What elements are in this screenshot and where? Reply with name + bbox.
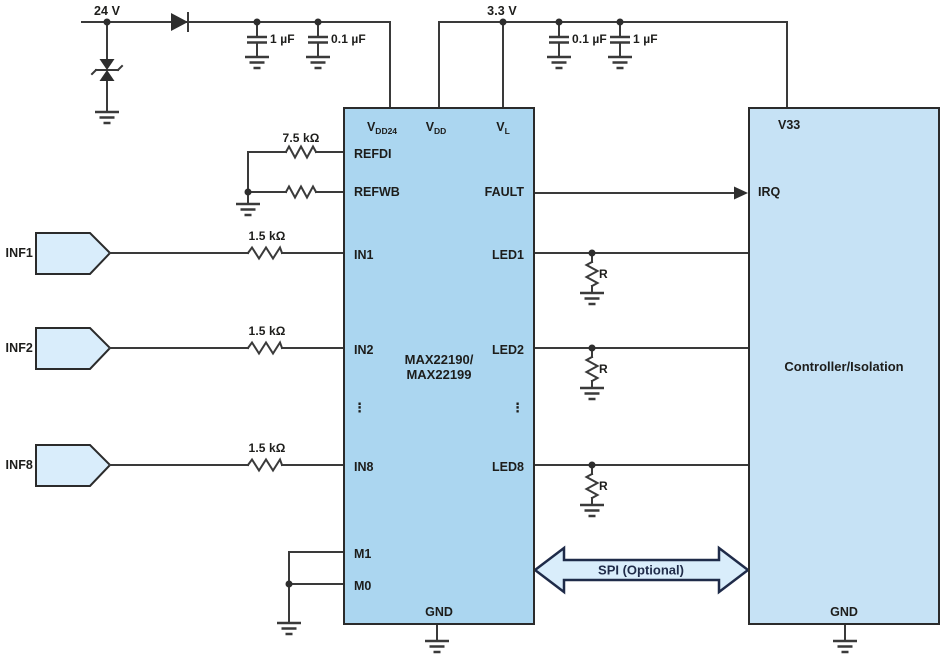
label-cap-01uf-24v: 0.1 µF (331, 31, 366, 47)
label-refdi-resistor: 7.5 kΩ (283, 130, 320, 146)
resistor-led2-icon (587, 357, 598, 381)
label-led2-resistor: R (599, 361, 608, 377)
resistor-led8-icon (587, 474, 598, 498)
pin-in8: IN8 (354, 459, 373, 475)
ground-icon-cap1-24v (245, 57, 269, 68)
resistor-refdi-icon (286, 147, 316, 158)
schematic-canvas: 24 V 1 µF 0.1 µF 3.3 V 0.1 µF 1 µF 7.5 k… (0, 0, 948, 658)
ground-icon-tvs (95, 112, 119, 123)
ic-left-ellipsis: ⋮ (353, 400, 366, 416)
ground-icon-led8 (580, 505, 604, 516)
junction-dot (617, 19, 624, 26)
pin-fault: FAULT (485, 184, 524, 200)
wire-m1-m0 (289, 552, 343, 623)
tvs-diode-lower-icon (100, 70, 115, 81)
input-connector-inf1 (36, 233, 110, 274)
resistor-led1-icon (587, 262, 598, 286)
wire-led2 (535, 348, 748, 388)
pin-vdd: VDD (426, 119, 447, 139)
ground-icon-cap2-24v (306, 57, 330, 68)
label-inf1: INF1 (0, 245, 33, 261)
junction-dot (315, 19, 322, 26)
ground-icon-cap2-3v3 (608, 57, 632, 68)
input-connector-inf8 (36, 445, 110, 486)
wire-led1 (535, 253, 748, 293)
controller-block: V33 IRQ Controller/Isolation GND (748, 107, 940, 625)
label-in1-resistor: 1.5 kΩ (249, 228, 286, 244)
ground-icon-cap1-3v3 (547, 57, 571, 68)
label-cap-1uf-3v3: 1 µF (633, 31, 658, 47)
resistor-in2-icon (248, 343, 282, 354)
label-inf2: INF2 (0, 340, 33, 356)
capacitor-1uf-24v-icon (247, 37, 267, 43)
pin-led1: LED1 (492, 247, 524, 263)
diode-icon (171, 13, 188, 31)
resistor-in1-icon (248, 248, 282, 259)
pin-v33: V33 (778, 117, 800, 133)
label-in2-resistor: 1.5 kΩ (249, 323, 286, 339)
label-24v-supply: 24 V (94, 3, 120, 19)
ground-icon-controller (833, 641, 857, 652)
pin-m0: M0 (354, 578, 371, 594)
ic-part-name: MAX22190/ MAX22199 (345, 352, 533, 382)
junction-dot (556, 19, 563, 26)
pin-vl: VL (496, 119, 510, 139)
junction-dot (589, 462, 596, 469)
resistor-in8-icon (248, 460, 282, 471)
ground-icon-ref (236, 204, 260, 215)
ground-icon-led2 (580, 388, 604, 399)
wire-3v3-rail (439, 22, 787, 107)
label-led1-resistor: R (599, 266, 608, 282)
junction-dot (589, 250, 596, 257)
ground-icon-led1 (580, 293, 604, 304)
pin-irq: IRQ (758, 184, 780, 200)
ic-right-ellipsis: ⋮ (511, 400, 524, 416)
junction-dot (500, 19, 507, 26)
pin-vdd24: VDD24 (367, 119, 397, 139)
label-cap-1uf-24v: 1 µF (270, 31, 295, 47)
label-led8-resistor: R (599, 478, 608, 494)
tvs-diode-upper-icon (100, 59, 115, 70)
capacitor-1uf-3v3-icon (610, 37, 630, 43)
ic-block-max22190: VDD24 VDD VL REFDI REFWB IN1 IN2 ⋮ IN8 M… (343, 107, 535, 625)
ground-icon-m0 (277, 623, 301, 634)
input-connector-inf2 (36, 328, 110, 369)
junction-dot (104, 19, 111, 26)
pin-ic-gnd: GND (345, 605, 533, 619)
pin-controller-gnd: GND (750, 605, 938, 619)
pin-refwb: REFWB (354, 184, 400, 200)
spi-label: SPI (Optional) (598, 563, 684, 578)
capacitor-01uf-3v3-icon (549, 37, 569, 43)
junction-dot (254, 19, 261, 26)
pin-m1: M1 (354, 546, 371, 562)
wire-led8 (535, 465, 748, 505)
ground-icon-ic (425, 641, 449, 652)
junction-dot (286, 581, 293, 588)
label-inf8: INF8 (0, 457, 33, 473)
fault-arrowhead-icon (734, 187, 748, 200)
pin-refdi: REFDI (354, 146, 392, 162)
pin-in1: IN1 (354, 247, 373, 263)
label-cap-01uf-3v3: 0.1 µF (572, 31, 607, 47)
resistor-refwb-icon (286, 187, 316, 198)
pin-led8: LED8 (492, 459, 524, 475)
label-in8-resistor: 1.5 kΩ (249, 440, 286, 456)
junction-dot (245, 189, 252, 196)
label-3v3-supply: 3.3 V (487, 3, 517, 19)
capacitor-01uf-24v-icon (308, 37, 328, 43)
junction-dot (589, 345, 596, 352)
controller-title: Controller/Isolation (750, 359, 938, 374)
